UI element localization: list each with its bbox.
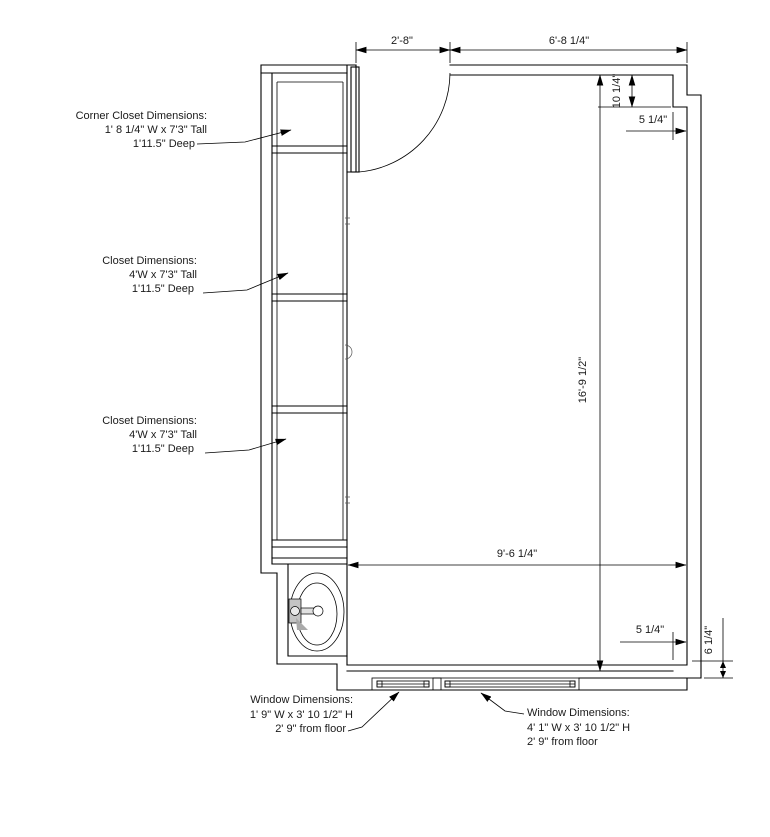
dim-right-jog-width-bottom: 5 1/4" [636,624,664,636]
faucet-shadow [296,618,308,630]
closet-middle-label-line1: Closet Dimensions: [102,255,197,267]
faucet-spout [301,608,314,614]
window-large-label-line2: 4' 1" W x 3' 10 1/2" H [527,722,630,734]
window-large-label-line1: Window Dimensions: [527,707,630,719]
extension-lines [356,42,733,678]
closet-divider-2 [272,294,347,301]
dim-room-width: 9'-6 1/4" [497,548,537,560]
step-arrow-up [720,661,726,668]
sink-drain [313,606,323,616]
dim-bottom-corner-step: 6 1/4" [703,626,715,654]
dimension-lines [348,42,733,678]
dim-top-wall: 6'-8 1/4" [549,35,589,47]
door-swing-arc [359,73,450,172]
leader-lines [197,130,524,731]
step-arrow-down [720,671,726,678]
corner-closet-label-line2: 1' 8 1/4" W x 7'3" Tall [105,124,207,136]
vanity-alcove-top-wall [272,558,347,564]
dim-room-height: 16'-9 1/2" [577,357,589,403]
window-small-label-line3: 2' 9" from floor [275,723,346,735]
floor-plan-page: Corner Closet Dimensions: 1' 8 1/4" W x … [0,0,770,837]
floor-plan-drawing: Corner Closet Dimensions: 1' 8 1/4" W x … [0,0,770,837]
outer-wall [261,65,701,690]
closet-bottom [272,540,347,547]
closet-small-arc [345,345,352,359]
window-mullion [433,678,441,690]
leader-closet-middle [203,273,288,293]
dim-right-jog-height: 10 1/4" [611,74,623,109]
closet-lower-label-line3: 1'11.5" Deep [132,443,194,455]
door-leaf [351,67,359,172]
closet-middle-label-line3: 1'11.5" Deep [132,283,194,295]
inner-wall-right [347,75,687,665]
dim-door-opening: 2'-8" [391,35,413,47]
door [351,67,450,172]
corner-closet-label-line1: Corner Closet Dimensions: [76,110,207,122]
closet-lower-label-line2: 4'W x 7'3" Tall [129,429,197,441]
annotation-text: Corner Closet Dimensions: 1' 8 1/4" W x … [76,35,715,748]
leader-window-large [481,693,524,714]
dim-right-jog-width-top: 5 1/4" [639,114,667,126]
window-large-label-line3: 2' 9" from floor [527,736,598,748]
faucet-handle [291,607,300,616]
window-small-label-line2: 1' 9" W x 3' 10 1/2" H [250,709,353,721]
closet-column [272,73,352,564]
closet-divider-1 [272,146,347,153]
sink-vanity [288,564,347,656]
window-small [377,681,429,687]
corner-closet-label-line3: 1'11.5" Deep [133,138,195,150]
leader-closet-lower [205,439,286,453]
walls [261,65,701,690]
window-large [445,681,575,687]
closet-divider-3 [272,406,347,413]
closet-lower-label-line1: Closet Dimensions: [102,415,197,427]
closet-middle-label-line2: 4'W x 7'3" Tall [129,269,197,281]
windows [372,678,579,690]
leader-window-small [348,692,399,731]
window-small-label-line1: Window Dimensions: [250,694,353,706]
